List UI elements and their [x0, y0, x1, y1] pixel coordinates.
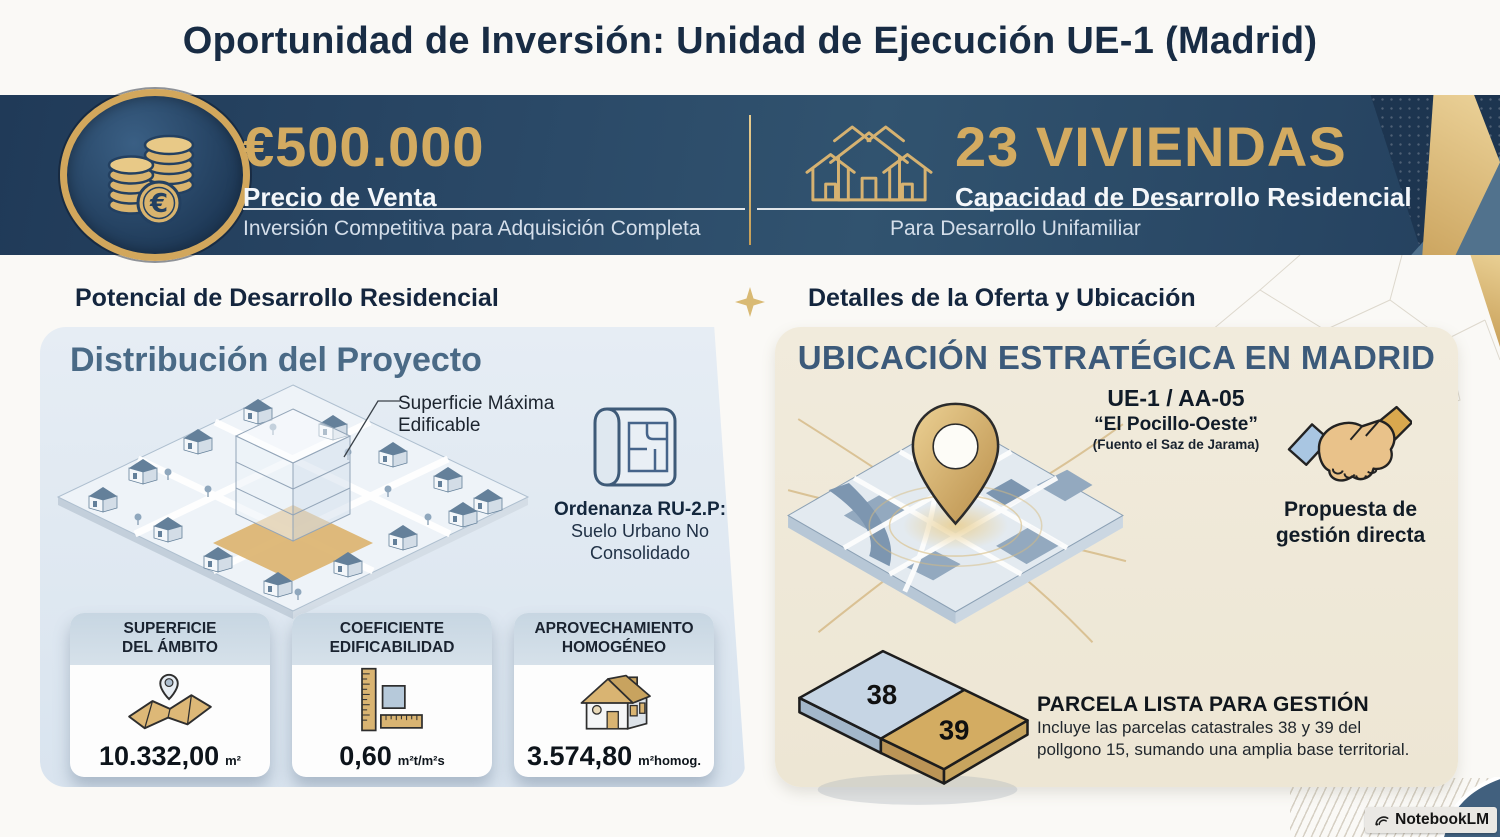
- stat-unit: m²homog.: [638, 753, 701, 768]
- units-value: 23 VIVIENDAS: [955, 120, 1412, 173]
- map-pin-icon: [122, 668, 218, 738]
- stat-card-header: SUPERFICIE DEL ÁMBITO: [70, 613, 270, 665]
- left-section-heading: Potencial de Desarrollo Residencial: [75, 284, 499, 313]
- stat-card-header: COEFICIENTE EDIFICABILIDAD: [292, 613, 492, 665]
- stat-value: 0,60: [339, 741, 392, 772]
- notebooklm-logo-icon: [1373, 812, 1390, 829]
- stat-value: 3.574,80: [527, 741, 632, 772]
- header-banner: € €500.000 Precio de Venta Inversión Com…: [0, 95, 1500, 255]
- stat-unit: m²t/m²s: [398, 753, 445, 768]
- price-value: €500.000: [243, 120, 485, 173]
- watermark-label: NotebookLM: [1395, 811, 1489, 829]
- infographic-page: Oportunidad de Inversión: Unidad de Ejec…: [0, 0, 1500, 837]
- stat-card-superficie: SUPERFICIE DEL ÁMBITO 10.332,00 m²: [70, 613, 270, 777]
- right-section-heading: Detalles de la Oferta y Ubicación: [808, 284, 1196, 313]
- star-icon: [735, 287, 765, 317]
- parcels-illustration: 38 39: [793, 645, 1038, 813]
- price-divider-line: [243, 208, 745, 210]
- stat-card-aprovechamiento: APROVECHAMIENTO HOMOGÉNEO 3.574,80: [514, 613, 714, 777]
- house-icon: [568, 667, 660, 739]
- units-divider-line: [757, 208, 1180, 210]
- stat-card-header: APROVECHAMIENTO HOMOGÉNEO: [514, 613, 714, 665]
- page-title: Oportunidad de Inversión: Unidad de Ejec…: [0, 20, 1500, 63]
- price-subtext: Inversión Competitiva para Adquisición C…: [243, 217, 701, 241]
- stat-value: 10.332,00: [99, 741, 219, 772]
- banner-center-divider: [749, 115, 751, 245]
- price-block: €500.000 Precio de Venta: [243, 120, 485, 213]
- ordenanza-title: Ordenanza RU-2.P:: [540, 499, 740, 521]
- watermark-pill: NotebookLM: [1365, 807, 1497, 833]
- location-name: “El Pocillo-Oeste”: [1087, 414, 1265, 436]
- proposal-text: Propuesta de gestión directa: [1258, 497, 1443, 550]
- max-buildable-annotation: Superficie Máxima Edificable: [398, 393, 554, 437]
- location-panel: UBICACIÓN ESTRATÉGICA EN MADRID: [775, 327, 1458, 787]
- units-subtext: Para Desarrollo Unifamiliar: [890, 217, 1141, 241]
- units-block: 23 VIVIENDAS Capacidad de Desarrollo Res…: [955, 120, 1412, 213]
- euro-coins-badge: €: [60, 89, 250, 261]
- project-distribution-panel: Distribución del Proyecto: [40, 327, 746, 787]
- location-map-illustration: [783, 363, 1128, 673]
- ordenanza-note: Ordenanza RU-2.P: Suelo Urbano No Consol…: [540, 499, 740, 565]
- left-panel-title: Distribución del Proyecto: [70, 341, 482, 380]
- svg-text:€: €: [149, 189, 168, 219]
- handshake-icon: [1287, 401, 1412, 493]
- parcel-a-label: 38: [867, 679, 898, 710]
- houses-icon: [805, 111, 933, 205]
- parcel-info-block: PARCELA LISTA PARA GESTIÓN Incluye las p…: [1037, 693, 1445, 761]
- parcel-b-label: 39: [939, 715, 970, 746]
- euro-coins-icon: €: [95, 115, 215, 235]
- parcel-info-title: PARCELA LISTA PARA GESTIÓN: [1037, 693, 1445, 717]
- ruler-icon: [352, 667, 432, 739]
- stat-card-coeficiente: COEFICIENTE EDIFICABILIDAD: [292, 613, 492, 777]
- location-municipality: (Fuento el Saz de Jarama): [1087, 437, 1265, 452]
- blueprint-scroll-icon: [585, 397, 685, 497]
- stat-unit: m²: [225, 753, 241, 768]
- location-text-block: UE-1 / AA-05 “El Pocillo-Oeste” (Fuento …: [1087, 385, 1265, 452]
- location-code: UE-1 / AA-05: [1087, 385, 1265, 412]
